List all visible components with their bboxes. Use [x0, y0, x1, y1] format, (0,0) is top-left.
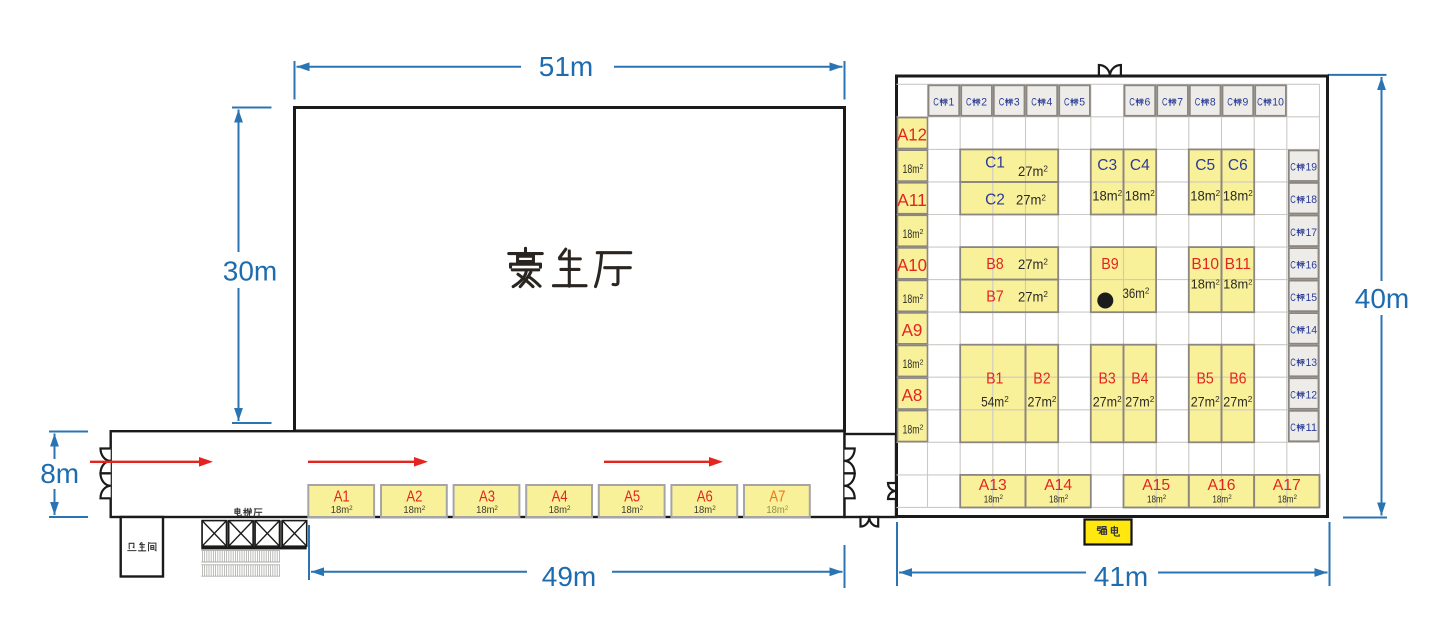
svg-text:A7: A7 — [769, 489, 785, 506]
svg-text:2: 2 — [1065, 494, 1069, 501]
svg-text:27m: 27m — [1018, 257, 1043, 272]
svg-text:27m: 27m — [1125, 395, 1149, 410]
svg-text:27m: 27m — [1191, 395, 1215, 410]
svg-text:8: 8 — [1210, 97, 1216, 109]
svg-text:A4: A4 — [552, 489, 568, 506]
svg-text:18m: 18m — [903, 292, 920, 306]
svg-text:2: 2 — [1150, 189, 1155, 198]
svg-text:2: 2 — [349, 505, 353, 512]
svg-text:2: 2 — [1294, 494, 1298, 501]
svg-text:30m: 30m — [223, 255, 277, 286]
svg-text:17: 17 — [1306, 227, 1318, 239]
svg-text:C1: C1 — [985, 155, 1005, 172]
svg-text:A12: A12 — [897, 125, 927, 145]
svg-text:C: C — [1064, 97, 1070, 109]
svg-text:C6: C6 — [1228, 157, 1248, 174]
svg-text:2: 2 — [1004, 395, 1009, 404]
svg-text:C2: C2 — [985, 192, 1005, 209]
svg-text:2: 2 — [494, 505, 498, 512]
svg-text:27m: 27m — [1223, 395, 1247, 410]
svg-text:18m: 18m — [1049, 493, 1065, 505]
svg-text:18m: 18m — [476, 504, 495, 516]
svg-text:2: 2 — [1043, 258, 1048, 267]
svg-text:1: 1 — [949, 97, 955, 109]
svg-text:C: C — [1290, 390, 1296, 402]
svg-text:C: C — [999, 97, 1005, 109]
svg-text:4: 4 — [1047, 97, 1053, 109]
svg-text:14: 14 — [1306, 324, 1318, 336]
svg-text:2: 2 — [1043, 165, 1048, 174]
svg-text:54m: 54m — [981, 395, 1004, 410]
svg-text:2: 2 — [1163, 494, 1167, 501]
svg-text:C: C — [1031, 97, 1037, 109]
svg-text:18m: 18m — [984, 493, 1000, 505]
svg-text:A17: A17 — [1273, 477, 1301, 494]
svg-text:27m: 27m — [1028, 395, 1052, 410]
svg-text:A10: A10 — [897, 255, 927, 275]
svg-text:B10: B10 — [1191, 256, 1219, 273]
svg-text:2: 2 — [1150, 395, 1155, 404]
svg-text:8m: 8m — [40, 458, 79, 489]
svg-text:2: 2 — [1228, 494, 1232, 501]
svg-text:C3: C3 — [1097, 157, 1117, 174]
svg-text:2: 2 — [1248, 395, 1253, 404]
svg-text:16: 16 — [1306, 259, 1318, 271]
svg-text:18m: 18m — [1191, 278, 1216, 292]
svg-text:C: C — [1129, 97, 1135, 109]
svg-text:18m: 18m — [1092, 189, 1117, 204]
svg-text:27m: 27m — [1093, 395, 1117, 410]
svg-text:B11: B11 — [1225, 256, 1251, 273]
svg-text:18m: 18m — [1223, 189, 1248, 204]
svg-text:A3: A3 — [479, 489, 495, 506]
svg-text:2: 2 — [1145, 287, 1150, 296]
svg-text:18: 18 — [1306, 194, 1318, 206]
svg-text:12: 12 — [1306, 390, 1318, 402]
svg-text:18m: 18m — [1147, 493, 1163, 505]
svg-text:B2: B2 — [1033, 371, 1050, 388]
svg-text:B4: B4 — [1131, 371, 1149, 388]
svg-text:2: 2 — [1041, 193, 1046, 202]
svg-text:27m: 27m — [1016, 193, 1041, 208]
svg-text:2: 2 — [1216, 189, 1221, 198]
svg-text:B7: B7 — [986, 289, 1004, 306]
svg-text:B9: B9 — [1101, 256, 1119, 273]
svg-text:18m: 18m — [621, 504, 640, 516]
svg-text:18m: 18m — [694, 504, 713, 516]
svg-text:2: 2 — [640, 505, 644, 512]
svg-text:27m: 27m — [1018, 164, 1043, 179]
svg-text:A5: A5 — [624, 489, 640, 506]
svg-text:C: C — [1290, 194, 1296, 206]
svg-text:18m: 18m — [1212, 493, 1228, 505]
svg-text:13: 13 — [1306, 357, 1318, 369]
svg-text:C: C — [1162, 97, 1168, 109]
svg-text:A16: A16 — [1208, 477, 1236, 494]
svg-text:15: 15 — [1306, 292, 1318, 304]
svg-text:18m: 18m — [1223, 278, 1248, 292]
svg-text:18m: 18m — [903, 227, 920, 241]
svg-text:A8: A8 — [902, 385, 923, 405]
svg-text:2: 2 — [422, 505, 426, 512]
svg-text:2: 2 — [981, 97, 987, 109]
svg-text:C: C — [1290, 162, 1296, 174]
svg-text:2: 2 — [1000, 494, 1004, 501]
svg-text:10: 10 — [1272, 97, 1284, 109]
svg-text:18m: 18m — [766, 504, 785, 516]
svg-text:A1: A1 — [334, 489, 350, 506]
svg-text:B5: B5 — [1197, 371, 1214, 388]
svg-text:18m: 18m — [903, 422, 920, 436]
svg-text:2: 2 — [1118, 189, 1123, 198]
svg-text:51m: 51m — [539, 51, 593, 82]
svg-text:2: 2 — [1248, 278, 1252, 287]
svg-text:2: 2 — [1043, 290, 1048, 299]
svg-text:B1: B1 — [986, 371, 1003, 388]
svg-text:9: 9 — [1243, 97, 1249, 109]
svg-text:18m: 18m — [1190, 189, 1215, 204]
svg-text:C: C — [1290, 227, 1296, 239]
svg-text:7: 7 — [1177, 97, 1183, 109]
svg-text:2: 2 — [920, 357, 924, 366]
svg-text:41m: 41m — [1094, 561, 1148, 592]
svg-text:C: C — [1195, 97, 1201, 109]
svg-text:40m: 40m — [1355, 283, 1409, 314]
svg-text:C: C — [966, 97, 972, 109]
svg-text:A2: A2 — [406, 489, 422, 506]
svg-text:18m: 18m — [403, 504, 422, 516]
svg-text:B6: B6 — [1229, 371, 1246, 388]
svg-text:2: 2 — [567, 505, 571, 512]
svg-text:2: 2 — [785, 505, 789, 512]
svg-text:A9: A9 — [902, 320, 923, 340]
svg-text:49m: 49m — [542, 561, 596, 592]
svg-text:B3: B3 — [1099, 371, 1116, 388]
svg-text:2: 2 — [1117, 395, 1122, 404]
svg-text:A6: A6 — [697, 489, 713, 506]
svg-text:18m: 18m — [331, 504, 350, 516]
svg-text:C: C — [1290, 422, 1296, 434]
svg-text:18m: 18m — [1125, 189, 1150, 204]
svg-text:C: C — [1227, 97, 1233, 109]
svg-text:5: 5 — [1079, 97, 1085, 109]
svg-text:A14: A14 — [1044, 477, 1072, 494]
svg-text:18m: 18m — [903, 162, 920, 176]
svg-text:A11: A11 — [897, 190, 927, 210]
svg-text:C5: C5 — [1195, 157, 1215, 174]
svg-text:2: 2 — [1216, 278, 1220, 287]
svg-text:C: C — [1290, 292, 1296, 304]
svg-text:27m: 27m — [1018, 290, 1043, 305]
svg-text:B8: B8 — [986, 256, 1004, 273]
svg-text:2: 2 — [920, 292, 924, 301]
svg-text:2: 2 — [1052, 395, 1057, 404]
svg-text:11: 11 — [1306, 422, 1318, 434]
svg-text:2: 2 — [1248, 189, 1253, 198]
svg-text:18m: 18m — [903, 357, 920, 371]
svg-text:36m: 36m — [1123, 286, 1145, 301]
svg-text:2: 2 — [920, 227, 924, 236]
svg-text:18m: 18m — [549, 504, 568, 516]
svg-text:C: C — [1290, 259, 1296, 271]
svg-text:C: C — [1290, 357, 1296, 369]
svg-text:2: 2 — [920, 422, 924, 431]
svg-text:3: 3 — [1014, 97, 1020, 109]
svg-text:2: 2 — [712, 505, 716, 512]
svg-text:C: C — [1257, 97, 1263, 109]
svg-text:2: 2 — [920, 162, 924, 171]
svg-text:6: 6 — [1145, 97, 1151, 109]
svg-text:C: C — [933, 97, 939, 109]
svg-text:A13: A13 — [979, 477, 1007, 494]
svg-text:19: 19 — [1306, 162, 1318, 174]
svg-text:18m: 18m — [1278, 493, 1294, 505]
svg-text:C: C — [1290, 324, 1296, 336]
svg-text:A15: A15 — [1142, 477, 1170, 494]
svg-text:C4: C4 — [1130, 157, 1150, 174]
svg-text:2: 2 — [1215, 395, 1220, 404]
